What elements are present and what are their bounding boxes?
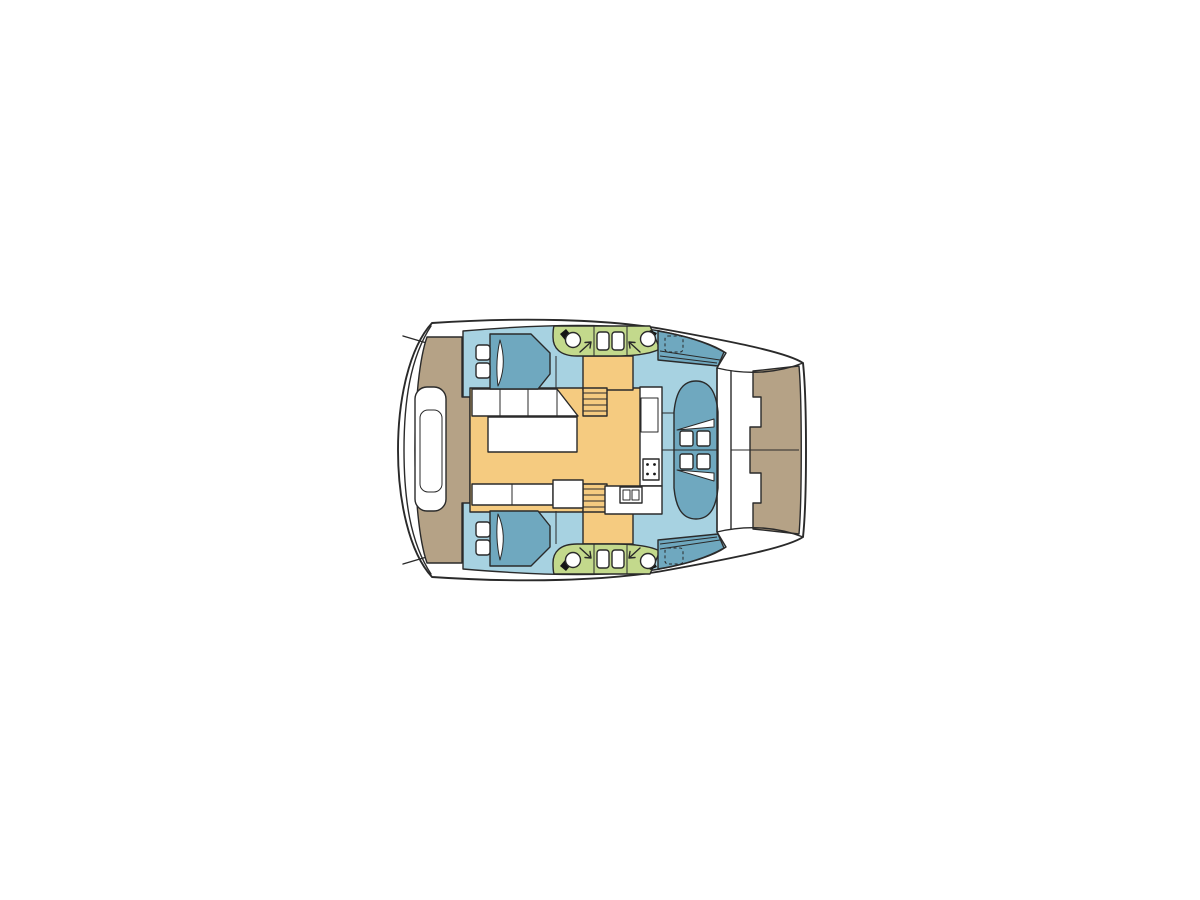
stairs-starboard [583, 484, 607, 512]
companionway-starboard [583, 510, 633, 544]
sink-icon [597, 550, 609, 568]
stairs-port [583, 388, 607, 416]
sink-icon [597, 332, 609, 350]
saloon-table [488, 417, 577, 452]
heads-starboard [553, 544, 660, 574]
pillow [476, 522, 490, 537]
floorplan-drawing [0, 0, 1200, 900]
catamaran-floorplan-page [0, 0, 1200, 900]
pillow [476, 540, 490, 555]
sink-icon [612, 550, 624, 568]
double-sink-icon [620, 487, 642, 503]
pillow [476, 345, 490, 360]
seat-cushion [680, 454, 693, 469]
stern-platform [415, 337, 470, 563]
stove-icon [643, 459, 659, 480]
seat-cushion [680, 431, 693, 446]
sink-icon [612, 332, 624, 350]
companionway-port [583, 356, 633, 390]
pillow [476, 363, 490, 378]
heads-port [553, 326, 660, 356]
seat-cushion [697, 431, 710, 446]
galley-counter-aft [553, 480, 583, 508]
seat-cushion [697, 454, 710, 469]
